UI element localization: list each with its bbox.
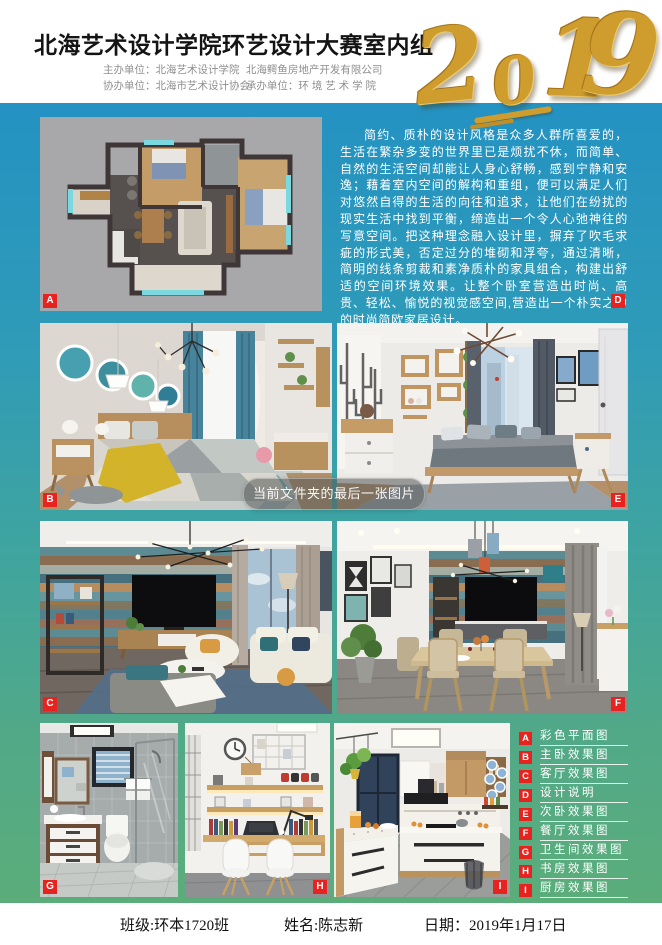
panel-label-c: C [43, 697, 57, 711]
legend-item-d: D 设计说明 [519, 784, 628, 803]
legend-key-i: I [519, 884, 532, 897]
legend-key-a: A [519, 732, 532, 745]
legend-item-h: H 书房效果图 [519, 860, 628, 879]
design-description-panel: 简约、质朴的设计风格是众多人群所喜爱的，生活在繁杂多变的世界里已是烦扰不休，而简… [340, 117, 628, 311]
legend-item-c: C 客厅效果图 [519, 765, 628, 784]
living-room-rendering [40, 521, 332, 714]
legend-key-c: C [519, 770, 532, 783]
panel-label-d: D [611, 294, 625, 308]
co-organizer: 协办单位：北海市艺术设计协会 [103, 78, 243, 94]
panel-label-a: A [43, 294, 57, 308]
panel-label-h: H [313, 880, 327, 894]
kitchen-panel: I [334, 723, 510, 897]
viewer-toast: 当前文件夹的最后一张图片 [243, 478, 425, 510]
poster-title: 北海艺术设计学院环艺设计大赛室内组 [34, 26, 434, 60]
host-organizer: 主办单位：北海艺术设计学院 [103, 62, 243, 78]
footer-name: 姓名:陈志新 [284, 914, 363, 935]
legend-item-i: I 厨房效果图 [519, 879, 628, 898]
poster-footer: 班级:环本1720班 姓名:陈志新 日期：2019年1月17日 [0, 903, 662, 945]
organizer-line-2: 协办单位：北海市艺术设计协会 承办单位：环 境 艺 术 学 院 [103, 78, 382, 94]
legend-item-a: A 彩色平面图 [519, 727, 628, 746]
row-plan-description: A 简约、质朴的设计风格是众多人群所喜爱的，生活在繁杂多变的世界里已是烦扰不休，… [40, 117, 628, 311]
legend-item-g: G 卫生间效果图 [519, 841, 628, 860]
host-organizer-2: 北海鳄鱼房地产开发有限公司 [246, 64, 383, 76]
footer-class: 班级:环本1720班 [120, 914, 229, 935]
organizer-lines: 主办单位：北海艺术设计学院 北海鳄鱼房地产开发有限公司 协办单位：北海市艺术设计… [103, 62, 382, 94]
legend-label-f: 餐厅效果图 [540, 824, 628, 841]
legend-item-b: B 主卧效果图 [519, 746, 628, 765]
legend: A 彩色平面图 B 主卧效果图 C 客厅效果图 D 设计说明 E 次卧效果图 [519, 723, 628, 897]
legend-key-e: E [519, 808, 532, 821]
panel-label-i: I [493, 880, 507, 894]
floor-plan-panel: A [40, 117, 322, 311]
legend-label-c: 客厅效果图 [540, 767, 628, 784]
kitchen-rendering [334, 723, 510, 897]
dining-room-rendering [337, 521, 628, 714]
row-living-dining: C [40, 521, 628, 714]
legend-item-e: E 次卧效果图 [519, 803, 628, 822]
legend-key-d: D [519, 789, 532, 802]
legend-label-e: 次卧效果图 [540, 805, 628, 822]
legend-label-h: 书房效果图 [540, 862, 628, 879]
legend-key-h: H [519, 865, 532, 878]
poster: 北海艺术设计学院环艺设计大赛室内组 主办单位：北海艺术设计学院 北海鳄鱼房地产开… [0, 0, 662, 945]
legend-key-f: F [519, 827, 532, 840]
bathroom-panel: G [40, 723, 178, 897]
legend-label-a: 彩色平面图 [540, 729, 628, 746]
organizer-line-1: 主办单位：北海艺术设计学院 北海鳄鱼房地产开发有限公司 [103, 62, 382, 78]
study-rendering [185, 723, 330, 897]
row-bath-study-kitchen: G [40, 723, 628, 897]
legend-label-g: 卫生间效果图 [540, 843, 628, 860]
footer-date: 日期：2019年1月17日 [424, 914, 567, 935]
legend-key-g: G [519, 846, 532, 859]
legend-label-i: 厨房效果图 [540, 881, 628, 898]
dining-room-panel: F [337, 521, 628, 714]
poster-header: 北海艺术设计学院环艺设计大赛室内组 主办单位：北海艺术设计学院 北海鳄鱼房地产开… [0, 0, 662, 103]
legend-key-b: B [519, 751, 532, 764]
panel-label-g: G [43, 880, 57, 894]
bathroom-rendering [40, 723, 178, 897]
legend-label-b: 主卧效果图 [540, 748, 628, 765]
panel-label-e: E [611, 493, 625, 507]
panel-label-b: B [43, 493, 57, 507]
floor-plan-rendering [40, 117, 322, 311]
design-description-text: 简约、质朴的设计风格是众多人群所喜爱的，生活在繁杂多变的世界里已是烦扰不休，而简… [340, 127, 628, 329]
legend-item-f: F 餐厅效果图 [519, 822, 628, 841]
living-room-panel: C [40, 521, 332, 714]
undertaker-organizer: 承办单位：环 境 艺 术 学 院 [246, 80, 376, 92]
legend-label-d: 设计说明 [540, 786, 628, 803]
panel-label-f: F [611, 697, 625, 711]
study-panel: H [185, 723, 330, 897]
